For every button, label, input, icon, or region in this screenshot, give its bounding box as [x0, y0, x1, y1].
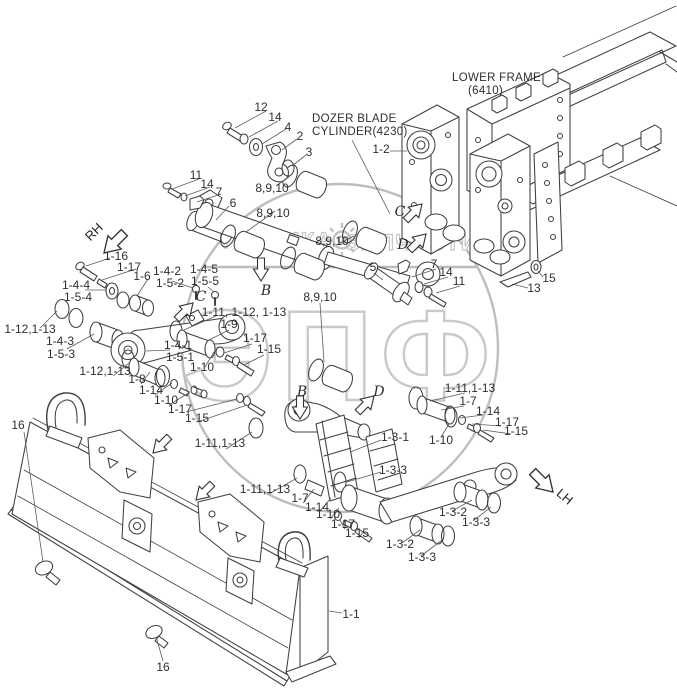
- frame-caption-line1: LOWER FRAME: [452, 72, 541, 84]
- part-callout: 1-7: [459, 394, 477, 408]
- part-callout: 1-10: [429, 433, 453, 447]
- part-callout: 1-2: [372, 142, 390, 156]
- part-callout: 1-6: [133, 269, 151, 283]
- part-callout: 1-3-2: [386, 537, 414, 551]
- view-marker-b: B: [296, 384, 307, 400]
- part-callout: 1-15: [185, 411, 209, 425]
- part-callout: 1-3-1: [381, 430, 409, 444]
- part-callout: 1-5-3: [47, 347, 75, 361]
- rh-label: RH: [82, 220, 106, 244]
- parts-diagram: ЭПФ ТЕХНИКА ЗАПЧАСТИ: [0, 0, 677, 696]
- part-callout: 1-11,1-13: [445, 381, 496, 395]
- part-callout: 8,9,10: [303, 290, 337, 304]
- part-callout: 15: [542, 271, 556, 285]
- part-callout: 14: [439, 265, 453, 279]
- part-callout: 13: [527, 281, 541, 295]
- part-callout: 1-10: [190, 360, 214, 374]
- view-marker-c: C: [196, 289, 207, 305]
- lh-label: LH: [554, 485, 576, 507]
- view-marker-d: D: [396, 237, 408, 253]
- part-callout: 14: [268, 110, 282, 124]
- part-callout: 1-11,1-13: [195, 436, 246, 450]
- part-callout: 1-15: [257, 342, 281, 356]
- part-callout: 12: [254, 100, 268, 114]
- part-callout: 6: [230, 196, 237, 210]
- part-callout: 2: [297, 129, 304, 143]
- frame-caption-line2: (6410): [468, 85, 503, 97]
- part-callout: 3: [306, 145, 313, 159]
- part-callout: 1-5-2: [156, 276, 184, 290]
- part-callout: 1-11,1-13: [240, 482, 291, 496]
- part-callout: 4: [285, 120, 292, 134]
- part-callout: 16: [156, 660, 170, 674]
- part-callout: 8,9,10: [256, 206, 290, 220]
- view-marker-b: B: [260, 283, 271, 299]
- view-marker-d: D: [372, 384, 384, 400]
- part-callout: 1-11, 1-12, 1-13: [202, 305, 287, 319]
- part-callout: 8,9,10: [315, 234, 349, 248]
- lh-arrow-icon: [526, 465, 560, 499]
- dozer-blade-drawing: [8, 393, 336, 686]
- part-callout: 1-15: [504, 424, 528, 438]
- cylinder-caption-line1: DOZER BLADE: [312, 113, 396, 125]
- part-callout: 1-12,1-13: [79, 364, 131, 378]
- part-callout: 16: [11, 418, 25, 432]
- part-callout: 14: [200, 177, 214, 191]
- part-callout: 1-1: [342, 607, 360, 621]
- part-callout: 1-5-5: [191, 274, 219, 288]
- explode-arrow-1: [148, 431, 175, 458]
- view-marker-c: C: [395, 204, 406, 220]
- cylinder-caption-line2: CYLINDER(4230): [312, 126, 408, 138]
- section-arrow-b1: [254, 258, 269, 281]
- part-callout: 1-3-3: [408, 550, 436, 564]
- part-callout: 1-3-3: [379, 463, 407, 477]
- part-callout: 7: [216, 185, 223, 199]
- part-callout: 11: [453, 274, 466, 288]
- part-callout: 1-9: [220, 317, 238, 331]
- part-callout: 1-15: [345, 526, 369, 540]
- part-callout: 8,9,10: [255, 181, 289, 195]
- part-callout: 5: [370, 260, 377, 274]
- part-callout: 1-3-3: [462, 515, 490, 529]
- washer-15: [531, 261, 541, 274]
- part-callout: 7: [431, 257, 438, 271]
- part-callout: 1-4-3: [46, 334, 74, 348]
- top-hardware-drawing: [163, 121, 294, 210]
- part-callout: 1-5-4: [64, 290, 92, 304]
